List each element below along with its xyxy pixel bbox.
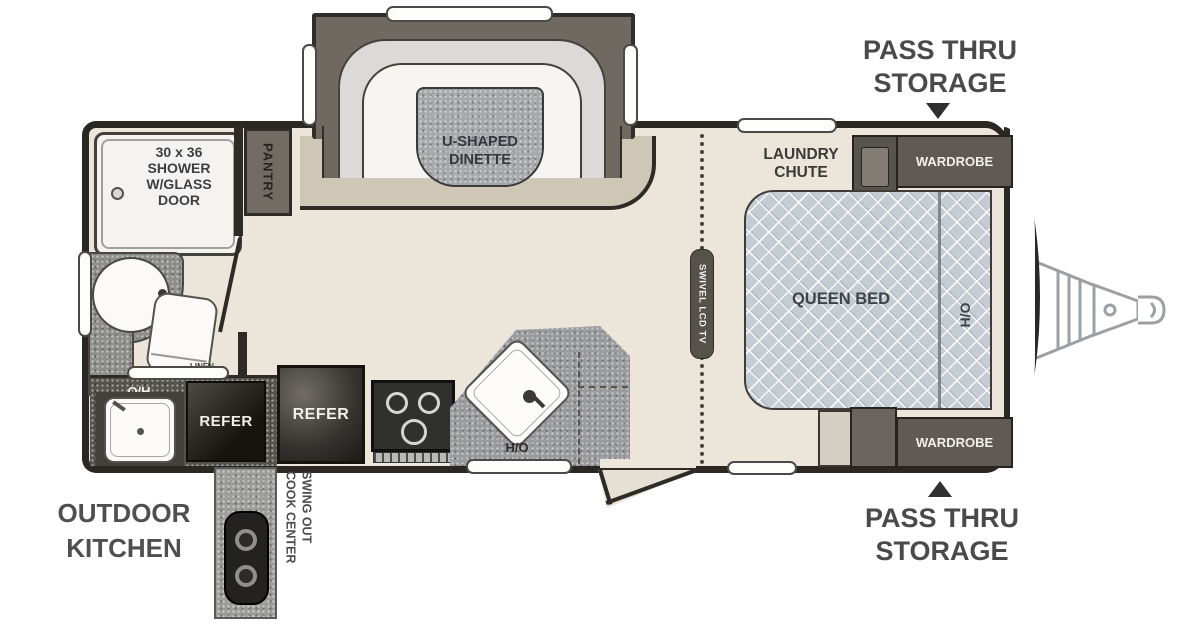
wardrobe-bottom: WARDROBE <box>896 417 1013 468</box>
laundry-chute-label: LAUNDRY CHUTE <box>742 146 860 183</box>
cook-burner-icon <box>235 529 257 551</box>
window <box>78 251 92 337</box>
outdoor-kitchen-line2: KITCHEN <box>38 531 210 566</box>
trailer-hitch-icon <box>1018 235 1193 385</box>
outdoor-sink-drain-icon <box>137 428 144 435</box>
pass-thru-bottom-line1: PASS THRU <box>850 502 1034 535</box>
window <box>466 459 572 474</box>
dinette-table: U-SHAPED DINETTE <box>416 87 544 187</box>
laundry-label-line1: LAUNDRY <box>742 146 860 164</box>
dinette-label-line2: DINETTE <box>449 152 511 169</box>
window <box>302 44 317 126</box>
window <box>623 44 638 126</box>
arrow-up-icon <box>928 481 952 497</box>
outdoor-kitchen-line1: OUTDOOR <box>38 496 210 531</box>
range-vent-strip <box>373 452 453 463</box>
swivel-tv: SWIVEL LCD TV <box>690 249 714 359</box>
shower-label-line3: W/GLASS <box>123 177 235 193</box>
shower-label-line4: DOOR <box>123 193 235 209</box>
outdoor-kitchen-hatch <box>127 366 229 380</box>
laundry-chute-bin <box>852 135 898 197</box>
pass-thru-storage-bottom-label: PASS THRU STORAGE <box>850 502 1034 568</box>
bathroom-wall <box>234 126 243 236</box>
curtain-track <box>700 134 704 250</box>
outdoor-sink <box>104 397 176 463</box>
outdoor-refer-label: REFER <box>199 413 252 430</box>
pass-thru-bottom-line2: STORAGE <box>850 535 1034 568</box>
shower-stall: 30 x 36 SHOWER W/GLASS DOOR <box>94 132 242 256</box>
laundry-chute-door <box>861 147 889 187</box>
cook-center-stove <box>224 511 269 605</box>
outdoor-refrigerator: REFER <box>186 381 266 462</box>
pass-thru-storage-top-label: PASS THRU STORAGE <box>848 34 1032 100</box>
bedside-cabinet <box>850 407 897 468</box>
refer-label: REFER <box>293 406 350 424</box>
wardrobe-bottom-label: WARDROBE <box>916 435 993 450</box>
window <box>737 118 837 133</box>
swing-out-label-line2: COOK CENTER <box>282 471 298 623</box>
floorplan-canvas: 30 x 36 SHOWER W/GLASS DOOR PANTRY LINEN… <box>0 0 1200 628</box>
slide-wall-stub <box>604 126 622 178</box>
counter-oh-outline <box>578 386 628 388</box>
refrigerator: REFER <box>277 365 365 464</box>
pass-thru-top-line1: PASS THRU <box>848 34 1032 67</box>
queen-bed-text: QUEEN BED <box>792 290 890 308</box>
counter-oh-outline <box>578 352 580 464</box>
dinette-label-line1: U-SHAPED <box>442 134 518 151</box>
cook-burner-icon <box>235 565 257 587</box>
window <box>386 6 553 22</box>
bed-oh-label: O/H <box>940 292 990 338</box>
kitchen-oh-text: O/H <box>505 440 528 455</box>
swivel-tv-label: SWIVEL LCD TV <box>697 264 708 344</box>
shower-label-line2: SHOWER <box>123 161 235 177</box>
burner-icon <box>401 419 427 445</box>
laundry-label-line2: CHUTE <box>742 164 860 182</box>
wardrobe-top: WARDROBE <box>896 135 1013 188</box>
burner-icon <box>418 392 440 414</box>
range-stove <box>371 380 455 452</box>
wardrobe-top-label: WARDROBE <box>916 154 993 169</box>
bed-oh-text: O/H <box>957 303 973 328</box>
outdoor-kitchen-label: OUTDOOR KITCHEN <box>38 496 210 566</box>
shower-label: 30 x 36 SHOWER W/GLASS DOOR <box>123 145 235 209</box>
pass-thru-top-line2: STORAGE <box>848 67 1032 100</box>
kitchen-oh-label: O/H <box>492 440 542 455</box>
curtain-track <box>700 356 704 464</box>
shower-label-line1: 30 x 36 <box>123 145 235 161</box>
bedside-shelf <box>818 410 852 467</box>
swing-out-label: SWING OUT COOK CENTER <box>282 471 313 623</box>
burner-icon <box>386 392 408 414</box>
window <box>727 461 797 475</box>
pantry-label: PANTRY <box>261 143 276 201</box>
queen-bed-label: QUEEN BED <box>744 290 938 309</box>
swing-out-label-line1: SWING OUT <box>298 471 314 623</box>
arrow-down-icon <box>926 103 950 119</box>
pantry-cabinet: PANTRY <box>244 128 292 216</box>
